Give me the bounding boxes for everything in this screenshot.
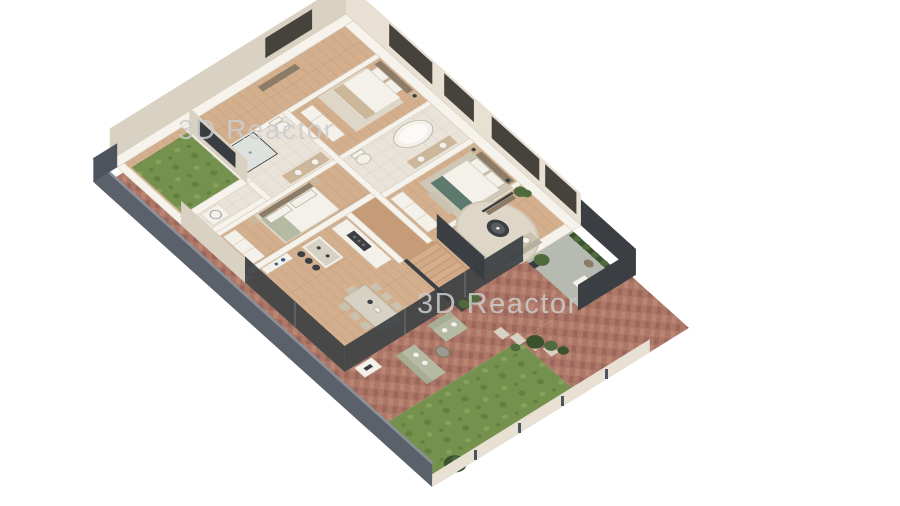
floor-plan-canvas (0, 0, 900, 506)
fence-post (561, 396, 564, 406)
fence-post (518, 423, 521, 433)
fence-post (474, 450, 477, 460)
floor-plan-render: 3D Reactor 3D Reactor (0, 0, 900, 506)
fence-post (605, 369, 608, 379)
